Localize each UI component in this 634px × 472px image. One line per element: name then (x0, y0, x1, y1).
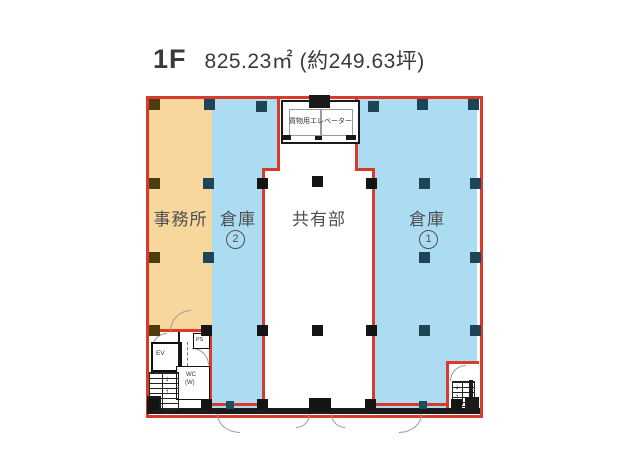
page-title: 1F825.23㎡ (約249.63坪) (153, 44, 425, 75)
structural-column (203, 252, 214, 263)
structural-column (417, 99, 428, 110)
toilet-label: WC (186, 372, 196, 378)
structural-column (226, 401, 234, 409)
stairs-down-arrow: ↓ (165, 375, 169, 383)
structural-column (257, 178, 268, 189)
structural-column (201, 399, 212, 410)
staircase-divider (462, 381, 463, 405)
structural-column (366, 178, 377, 189)
door-arc (296, 414, 310, 428)
freight-elevator-label: 貨物用エレベーター (283, 116, 358, 126)
structural-column (419, 178, 430, 189)
shaft-line (187, 342, 188, 366)
boundary-wall (372, 168, 375, 409)
structural-column (149, 178, 160, 189)
wall-segment (346, 135, 356, 140)
boundary-wall (277, 99, 280, 171)
structural-column (309, 398, 331, 412)
door-arc (331, 414, 345, 428)
room-common-label: 共有部 (282, 205, 356, 230)
structural-column (203, 178, 214, 189)
boundary-wall (375, 403, 449, 406)
door-arc (217, 414, 240, 433)
structural-column (257, 325, 268, 336)
structural-column (204, 99, 215, 110)
room-office-label: 事務所 (149, 205, 212, 230)
elevator-door-wall (309, 95, 330, 108)
structural-column (366, 325, 377, 336)
structural-column (419, 252, 430, 263)
structural-column (256, 101, 267, 112)
floor-plan-page: 1F825.23㎡ (約249.63坪) 貨物用エレベーター EV PS (0, 0, 634, 472)
staircase-divider (162, 372, 163, 408)
structural-column (312, 176, 323, 187)
wall-segment (315, 136, 322, 140)
stairs-up-arrow: ↑ (455, 393, 459, 401)
area-label: 825.23㎡ (約249.63坪) (205, 50, 425, 73)
room-warehouse-1-label: 倉庫 (402, 205, 452, 230)
structural-column (149, 252, 160, 263)
structural-column (149, 99, 160, 110)
wall-segment (465, 397, 479, 411)
room-warehouse-2-area (212, 99, 264, 409)
door-arc (399, 414, 422, 433)
structural-column (470, 325, 481, 336)
structural-column (365, 399, 376, 410)
toilet-sub-label: (W) (185, 380, 195, 386)
structural-column (201, 325, 212, 336)
structural-column (257, 399, 268, 410)
wall-segment (178, 332, 180, 370)
structural-column (419, 325, 430, 336)
structural-column (470, 252, 481, 263)
structural-column (368, 101, 379, 112)
elevator-label: EV (156, 350, 165, 357)
stairs-up-arrow: ↑ (165, 388, 169, 396)
structural-column (468, 99, 479, 110)
room-warehouse-2-label: 倉庫 (212, 205, 264, 230)
structural-column (312, 325, 323, 336)
structural-column (149, 325, 160, 336)
stairs-down-arrow: ↓ (455, 383, 459, 391)
structural-column (470, 178, 481, 189)
pipe-space-label: PS (196, 337, 203, 343)
structural-column (419, 401, 427, 409)
wall-segment (281, 135, 291, 140)
structural-column (148, 399, 159, 410)
warehouse-1-number: 1 (419, 230, 438, 249)
warehouse-2-number: 2 (226, 230, 245, 249)
floor-label: 1F (153, 44, 187, 74)
